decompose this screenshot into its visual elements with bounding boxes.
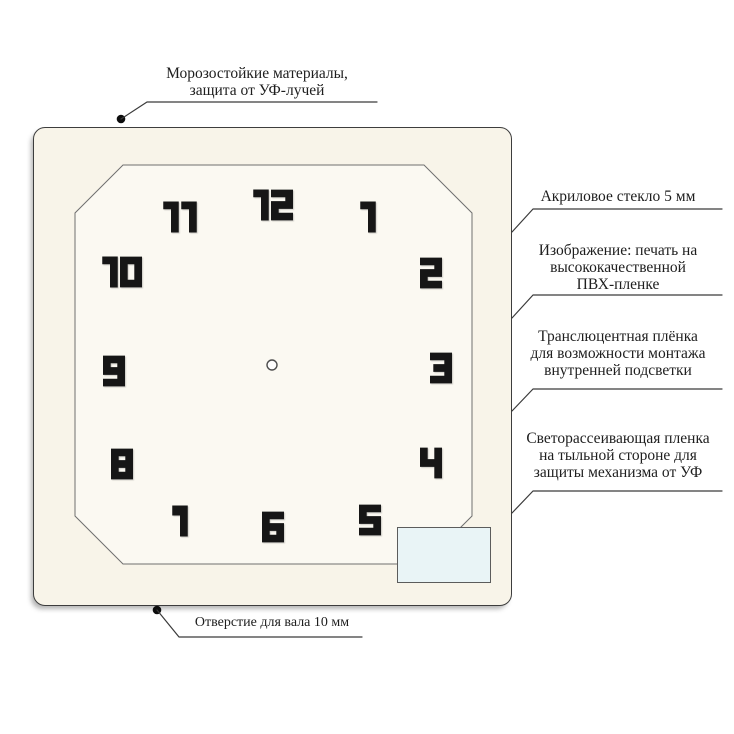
hour-number-5 [359, 505, 381, 536]
hour-number-10 [102, 257, 142, 288]
digit-5 [359, 505, 381, 536]
leader-line-pvc [512, 295, 722, 318]
digit-6 [262, 512, 284, 543]
leader-line-acrylic [512, 209, 722, 232]
digit-2 [271, 190, 293, 221]
shaft-hole-icon [267, 360, 277, 370]
digit-1 [360, 202, 376, 233]
hour-number-4 [420, 448, 442, 479]
digit-1 [102, 257, 118, 288]
hour-number-7 [172, 506, 188, 537]
annotation-translucent-film: Транслюцентная плёнка для возможности мо… [512, 328, 724, 379]
hour-number-3 [430, 353, 452, 384]
annotation-shaft-hole: Отверстие для вала 10 мм [170, 614, 374, 631]
hour-number-12 [253, 190, 293, 221]
annotation-pvc-print: Изображение: печать на высококачественно… [512, 242, 724, 293]
digit-1 [253, 190, 269, 221]
hour-number-8 [111, 449, 133, 480]
digit-1 [181, 202, 197, 233]
annotation-acrylic-glass: Акриловое стекло 5 мм [512, 188, 724, 205]
hour-number-6 [262, 512, 284, 543]
annotation-frost-protection: Морозостойкие материалы, защита от УФ-лу… [128, 65, 386, 99]
annotation-diffuser-film: Светорассеивающая пленка на тыльной стор… [512, 430, 724, 481]
hour-number-1 [360, 202, 376, 233]
digit-7 [172, 506, 188, 537]
leader-line-frost [121, 102, 377, 119]
hour-number-9 [103, 356, 125, 387]
digit-2 [420, 258, 442, 289]
digit-3 [430, 353, 452, 384]
hour-number-11 [163, 202, 197, 233]
leader-line-translucent [512, 389, 722, 411]
mechanism-box [397, 527, 491, 583]
digit-4 [420, 448, 442, 479]
leader-line-diffuser [512, 491, 722, 513]
diagram-canvas: Морозостойкие материалы, защита от УФ-лу… [0, 0, 734, 734]
hour-number-2 [420, 258, 442, 289]
digit-9 [103, 356, 125, 387]
digit-8 [111, 449, 133, 480]
digit-1 [163, 202, 179, 233]
digit-0 [120, 257, 142, 288]
